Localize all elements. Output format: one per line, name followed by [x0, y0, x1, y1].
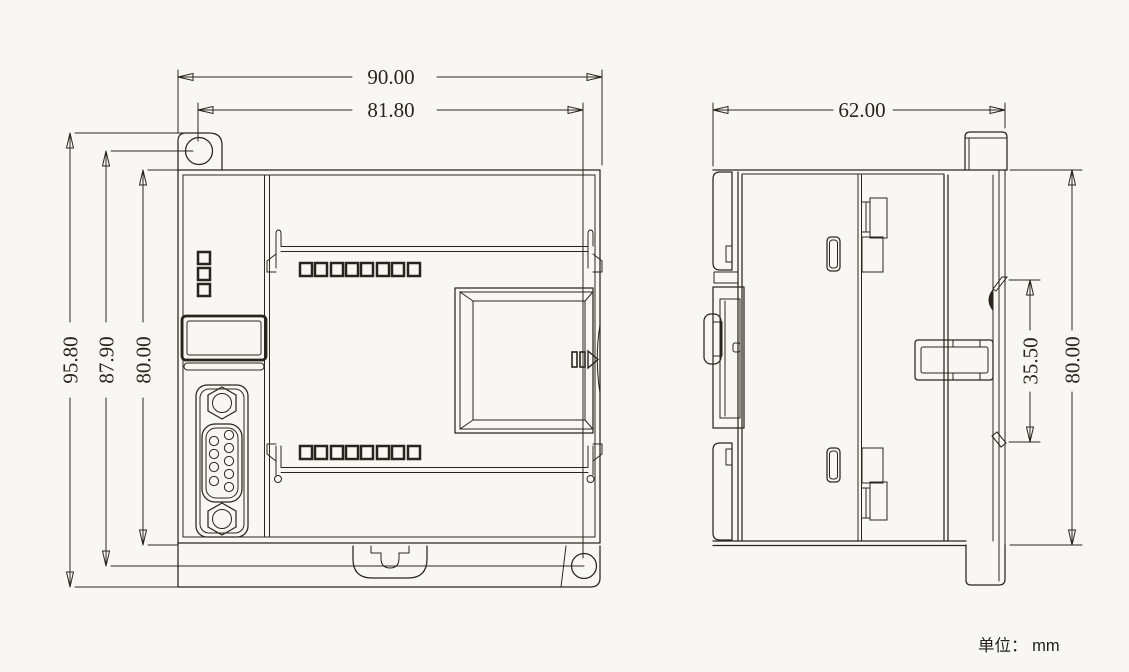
dim-label-body-height-side: 80.00: [1061, 336, 1085, 383]
din-rail-profile: [999, 170, 1005, 581]
db9-serial-port: [196, 385, 248, 537]
dim-overall-height: 95.80: [59, 133, 83, 587]
din-rail-slider: [915, 340, 993, 380]
bottom-mounting-plate: [178, 543, 600, 587]
db9-plate: [196, 385, 248, 537]
side-front-face: [704, 172, 744, 540]
front-dimensions: 90.00 81.80 95.80 87.90 80.00: [59, 65, 603, 587]
dim-rail-clip-span: 35.50: [1019, 280, 1043, 442]
side-clip-top: [827, 237, 840, 271]
terminal-cover-bottom: [267, 444, 602, 483]
ext-hole-span-width: [198, 103, 583, 558]
db9-pins: [209, 430, 233, 491]
dim-hole-span-height: 87.90: [95, 151, 119, 566]
side-body-rear-edge: [944, 175, 948, 541]
dim-overall-width: 90.00: [178, 65, 602, 89]
side-dimensions: 62.00 35.50 80.00: [713, 98, 1085, 545]
dim-hole-span-width: 81.80: [198, 98, 583, 122]
side-terminal-cover-bottom: [713, 443, 732, 540]
dim-label-depth: 62.00: [838, 98, 885, 122]
front-view: [178, 133, 602, 587]
db9-shell: [202, 424, 242, 502]
dim-label-hole-span-width: 81.80: [367, 98, 414, 122]
front-body-outline: [178, 170, 600, 543]
drawing-stage: 90.00 81.80 95.80 87.90 80.00: [0, 0, 1129, 672]
mode-switch: [182, 316, 266, 370]
side-center-divider: [858, 175, 862, 541]
side-view: [704, 132, 1007, 585]
dim-depth: 62.00: [713, 98, 1005, 122]
dim-label-hole-span-height: 87.90: [95, 336, 119, 383]
din-clip-tab: [353, 546, 427, 578]
io-led-row-top: [300, 263, 420, 276]
dim-label-overall-width: 90.00: [367, 65, 414, 89]
side-latch-blocks-top: [862, 198, 888, 272]
side-terminal-cover-top: [713, 172, 732, 270]
side-bottom-edge: [713, 541, 966, 546]
rail-latch-bump: [989, 289, 994, 311]
terminal-cover-top: [267, 230, 602, 272]
access-door: [455, 288, 600, 433]
dim-label-overall-height: 95.80: [59, 336, 83, 383]
side-clip-bottom: [827, 448, 840, 482]
dim-body-height-front: 80.00: [132, 170, 156, 545]
side-latch-blocks-bottom: [862, 448, 888, 520]
dim-label-rail-clip-span: 35.50: [1019, 337, 1043, 384]
io-led-row-bottom: [300, 446, 420, 459]
status-led-column: [198, 252, 210, 296]
rear-mounting-tab-top: [965, 132, 1007, 170]
technical-drawing: 90.00 81.80 95.80 87.90 80.00: [0, 0, 1129, 672]
dim-label-body-height-front: 80.00: [132, 336, 156, 383]
door-grip-icon: [572, 351, 598, 368]
units-note: 单位： mm: [978, 636, 1060, 655]
front-body-inner-outline: [183, 175, 595, 537]
dim-body-height-side: 80.00: [1061, 170, 1085, 545]
